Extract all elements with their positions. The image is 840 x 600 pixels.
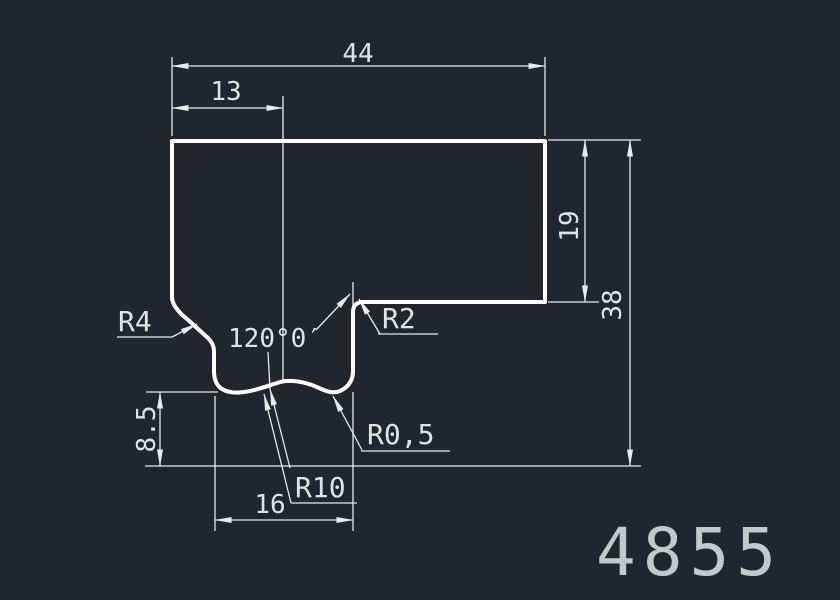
leader-r0-5: [333, 396, 362, 450]
dim-text-fillet-r0-5: R0,5: [367, 418, 434, 451]
dim-text-left-width: 13: [210, 77, 241, 107]
leader-r10: [264, 394, 291, 503]
cad-drawing-canvas: 44 13 19 38 8.5 16 120°0′ R4 R2 R0,5 R10…: [0, 0, 840, 600]
dim-text-groove-r10: R10: [295, 471, 346, 504]
profile-drawing-4855: 44 13 19 38 8.5 16 120°0′ R4 R2 R0,5 R10…: [0, 0, 840, 600]
extension-lines: [145, 57, 641, 531]
part-number-text: 4855: [596, 514, 783, 591]
dim-text-angle: 120°0′: [228, 324, 322, 354]
dim-text-fillet-r2: R2: [382, 302, 416, 335]
dim-text-notch-depth: 8.5: [132, 406, 162, 453]
dimension-lines: [160, 66, 630, 520]
dim-text-fillet-r4: R4: [118, 305, 152, 338]
dimension-texts: 44 13 19 38 8.5 16 120°0′ R4 R2 R0,5 R10: [118, 39, 628, 520]
profile-outline: [172, 141, 545, 393]
dim-text-total-height: 38: [598, 289, 628, 320]
dim-text-notch-width: 16: [254, 490, 285, 520]
leader-r2: [359, 299, 380, 334]
dim-text-right-height: 19: [555, 210, 585, 241]
dim-text-total-width: 44: [342, 39, 373, 69]
